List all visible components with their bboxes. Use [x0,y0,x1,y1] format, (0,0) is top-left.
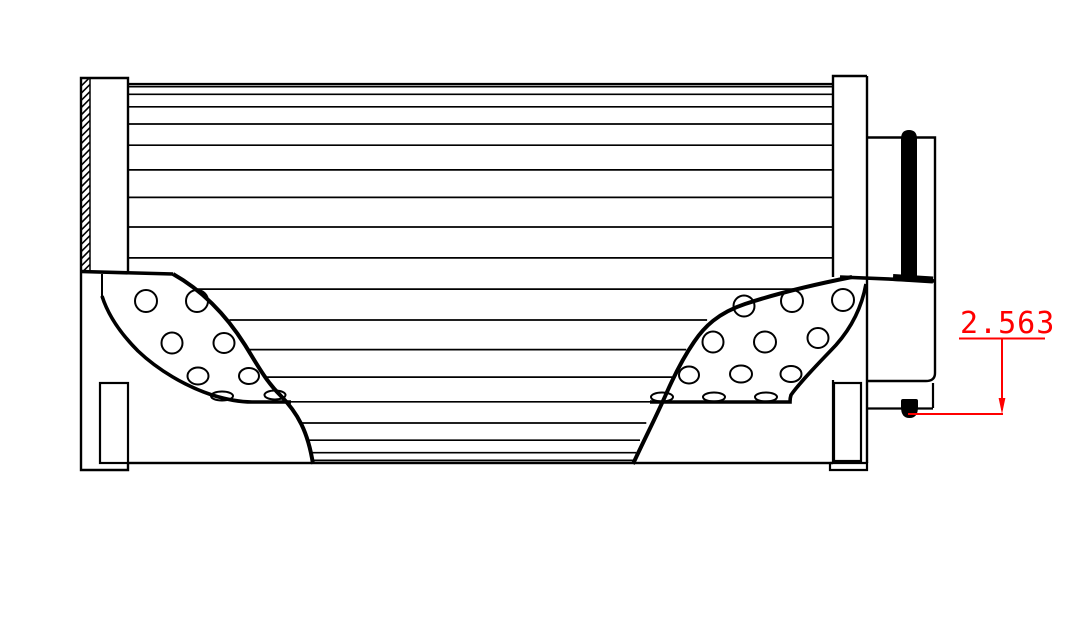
right-band-holes [651,289,854,402]
window-right-curve [633,277,852,464]
right-end-cap [830,76,867,470]
boundary-line-left [81,272,173,275]
cutaway-boundary-right [633,277,935,464]
right-end-cap-bottom-lip [830,463,867,470]
seal-bar [901,130,917,276]
boundary-line-right-heavy [893,278,933,281]
filter-cross-section-drawing: 2.563 [0,0,1074,621]
pleated-media-lines [128,84,833,463]
dimension-annotation: 2.563 [908,306,1055,414]
left-end-cap-inner-slot [100,383,128,463]
drawing-canvas: 2.563 [0,0,1074,621]
right-end-cap-top [833,76,867,277]
left-end-cap-hatch [81,70,90,281]
dimension-arrowhead [999,398,1006,414]
o-ring-seal [901,399,918,418]
dimension-value: 2.563 [960,306,1055,341]
left-perforated-band [102,290,291,402]
right-end-cap-inner-slot [834,383,861,461]
seals [901,130,918,418]
left-band-holes [135,290,286,401]
